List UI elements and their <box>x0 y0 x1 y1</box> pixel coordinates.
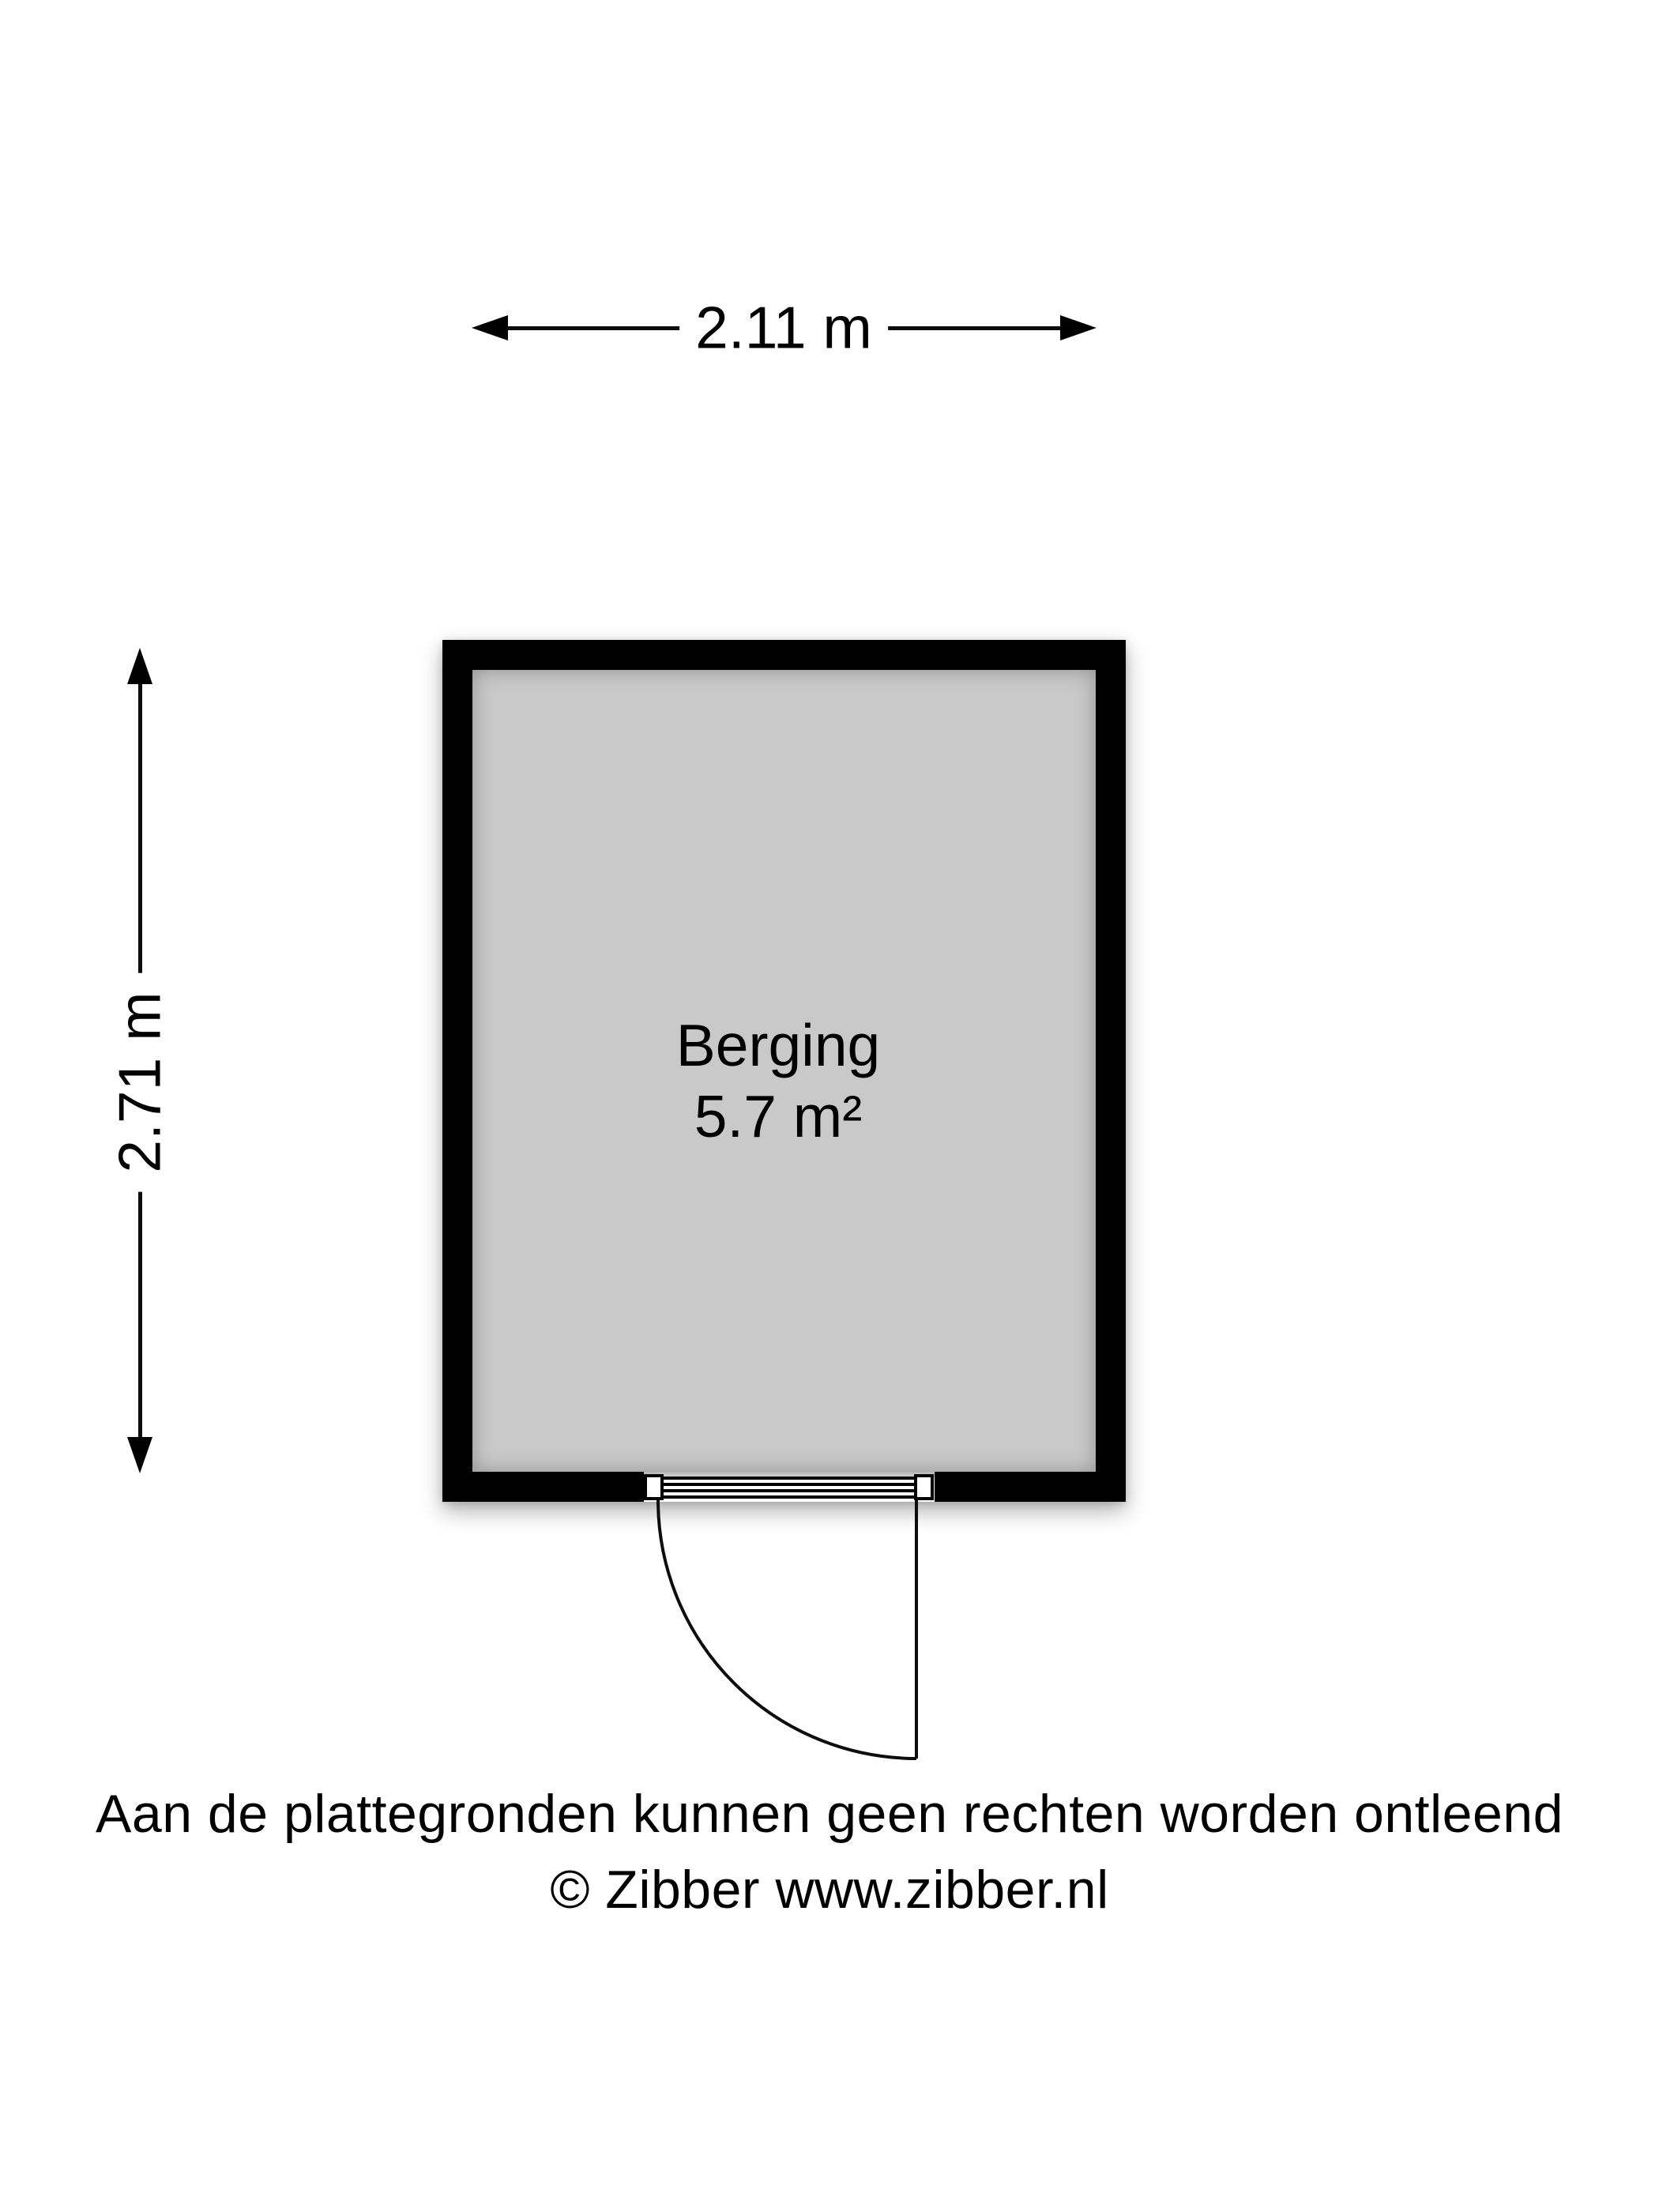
room-label: Berging 5.7 m² <box>676 1010 881 1152</box>
disclaimer-text: Aan de plattegronden kunnen geen rechten… <box>0 1776 1659 1852</box>
width-dimension-label: 2.11 m <box>679 294 888 363</box>
arrowhead-up-icon <box>127 648 152 684</box>
footer: Aan de plattegronden kunnen geen rechten… <box>0 1776 1659 1928</box>
floorplan-canvas: 2.11 m 2.71 m Berging 5.7 m² Aan de plat… <box>0 0 1659 2212</box>
arrowhead-right-icon <box>1060 315 1097 340</box>
room-area-label: 5.7 m² <box>676 1081 881 1152</box>
arrowhead-left-icon <box>472 315 508 340</box>
room-name-label: Berging <box>676 1010 881 1081</box>
copyright-text: © Zibber www.zibber.nl <box>0 1852 1659 1928</box>
arrowhead-down-icon <box>127 1437 152 1473</box>
door-swing-graphic <box>624 1485 956 1777</box>
door-swing-arc <box>658 1500 916 1759</box>
height-dimension-label: 2.71 m <box>106 972 175 1191</box>
